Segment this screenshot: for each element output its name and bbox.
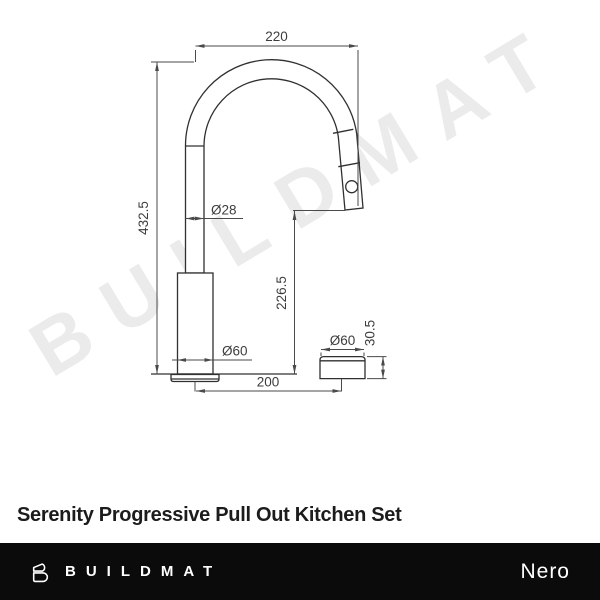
buildmat-logo-icon [30,560,54,584]
dim-label-spout-diameter: Ø28 [211,203,237,218]
dim-label-base-diameter: Ø60 [222,344,248,359]
dim-label-mixer-height: 30.5 [363,320,378,346]
dim-label-outlet-height: 226.5 [274,276,289,310]
dim-label-overall-height: 432.5 [136,201,151,235]
base-flange [171,375,219,382]
dimension-mixer-diameter: Ø60 [321,333,364,356]
dimension-mixer-height: 30.5 [363,320,387,379]
buildmat-wordmark: BUILDMAT [65,563,222,580]
dim-label-mixer-diameter: Ø60 [330,333,356,348]
footer-bar: BUILDMAT Nero [0,543,600,600]
nero-brand-logo: Nero [520,560,570,584]
spout-gooseneck [185,60,363,273]
dim-label-centre-spacing: 200 [257,375,280,390]
dimension-spout-reach: 220 [151,29,358,206]
dimension-overall-height: 432.5 [136,62,157,374]
technical-drawing: 220 432.5 Ø28 226.5 Ø60 200 Ø60 [0,0,600,505]
spray-button-icon [346,181,358,193]
progressive-mixer-knob [320,357,365,379]
product-title: Serenity Progressive Pull Out Kitchen Se… [17,504,402,527]
buildmat-brand: BUILDMAT [30,560,222,584]
dim-label-spout-reach: 220 [265,29,288,44]
